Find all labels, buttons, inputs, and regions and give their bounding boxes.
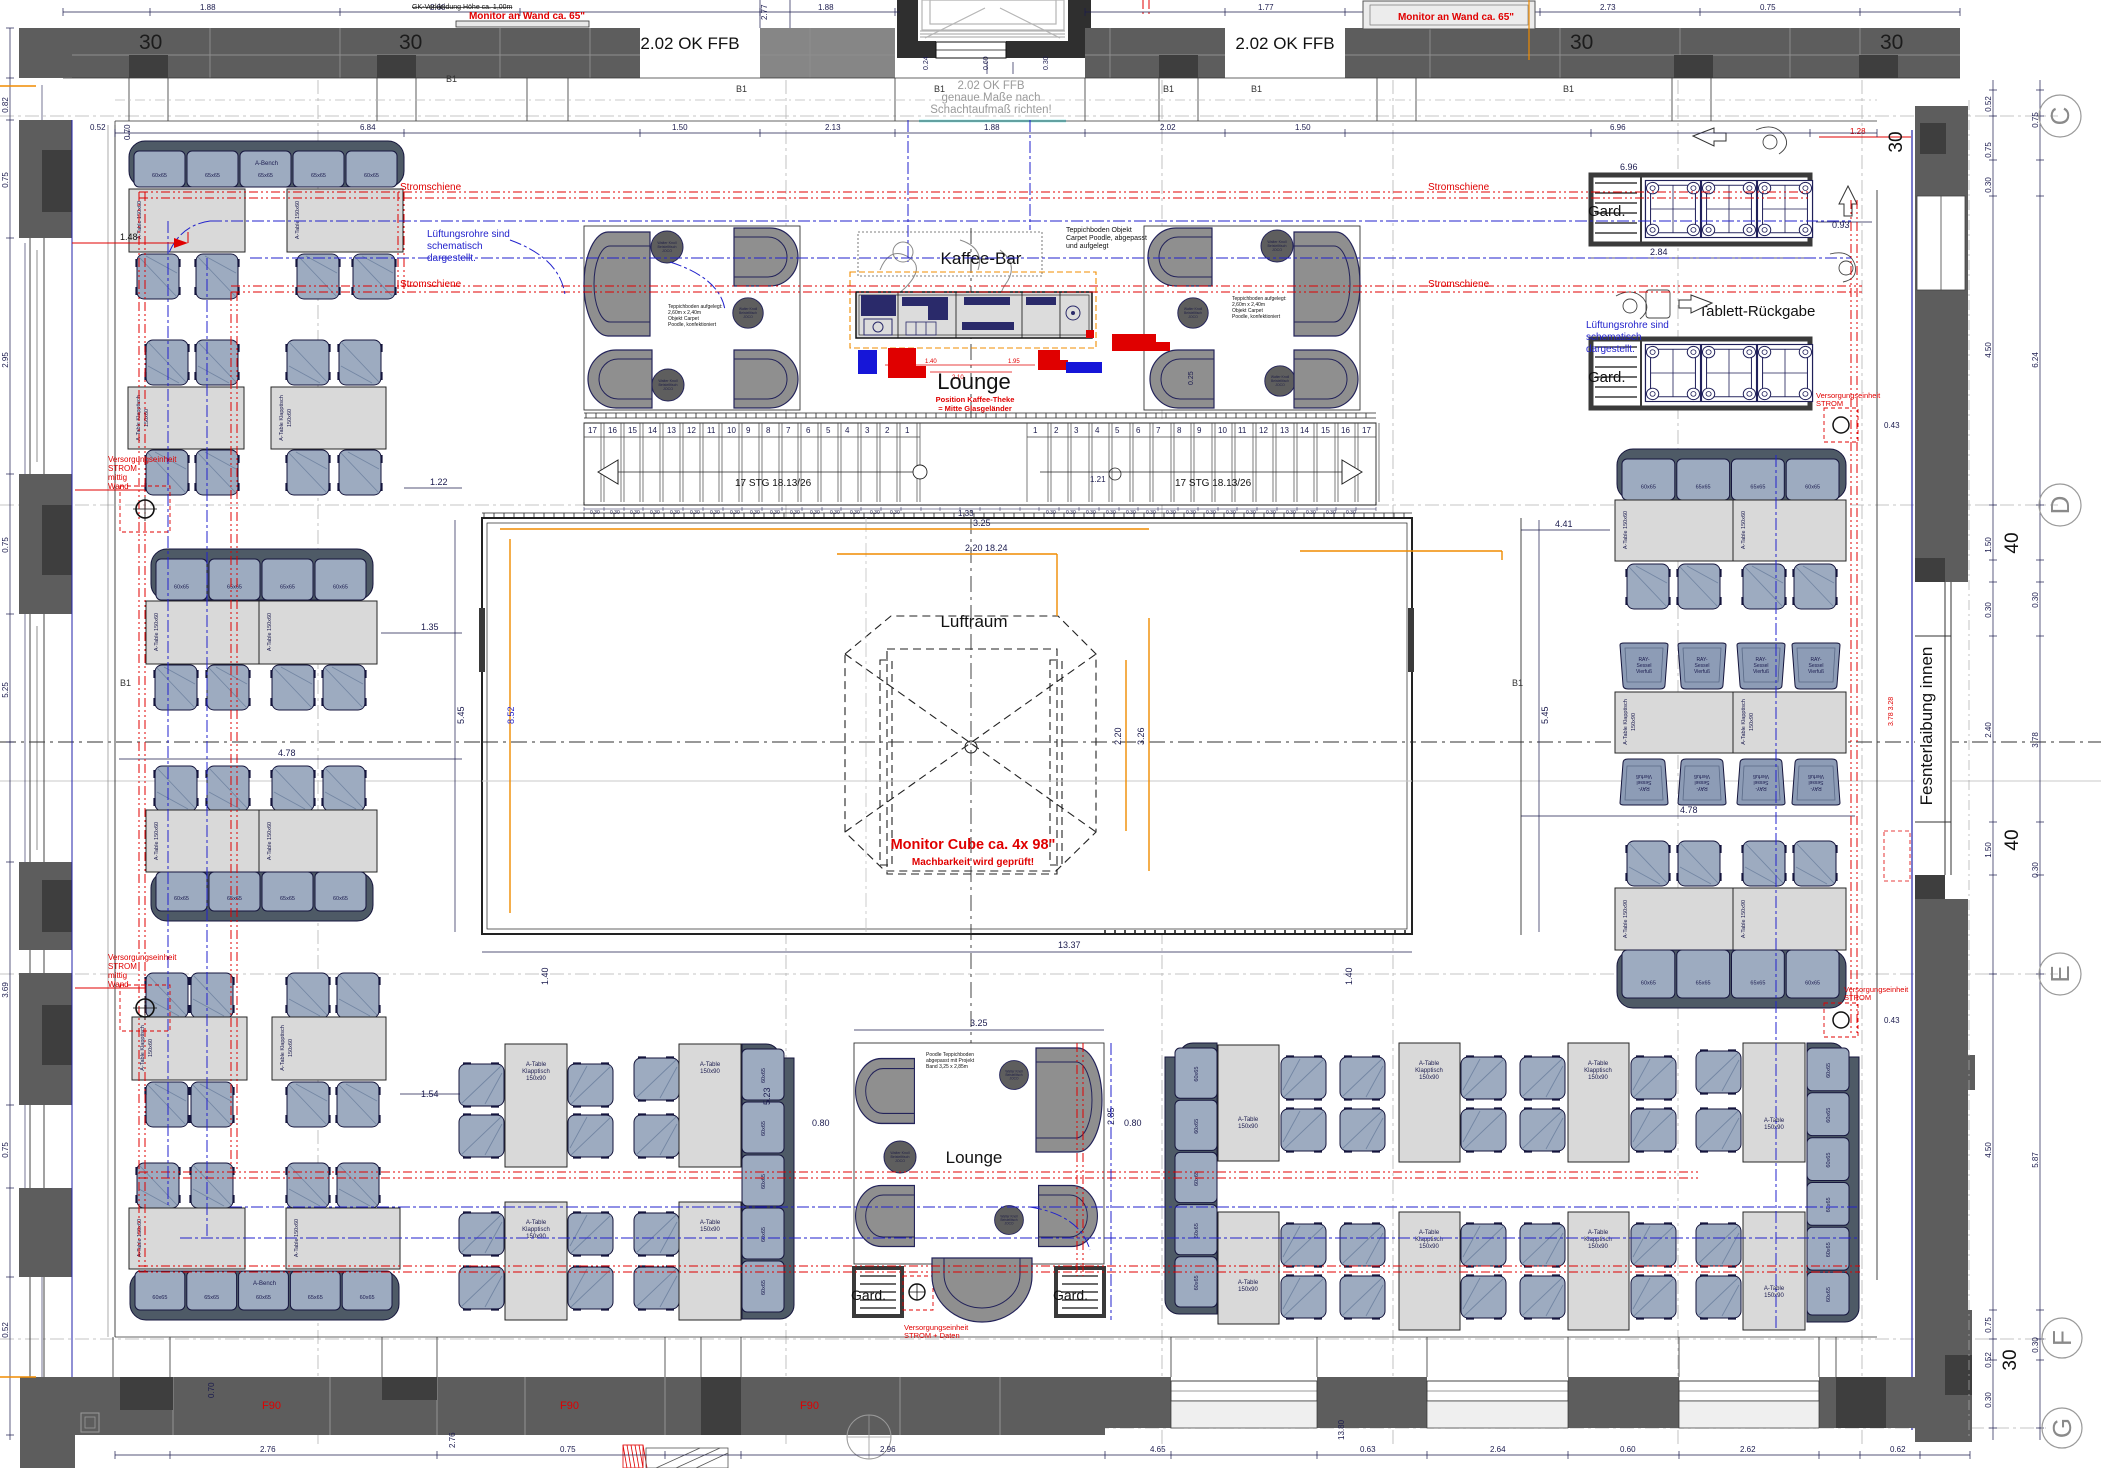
svg-text:0.75: 0.75 (1760, 3, 1776, 12)
svg-text:60x65: 60x65 (1826, 1197, 1832, 1212)
svg-text:0.30: 0.30 (1286, 510, 1296, 516)
svg-text:150x90: 150x90 (1238, 1124, 1258, 1130)
svg-text:15: 15 (1321, 426, 1330, 435)
svg-text:F90: F90 (560, 1400, 579, 1412)
svg-text:150x60: 150x60 (288, 1039, 294, 1057)
svg-text:3.69: 3.69 (1, 982, 10, 998)
svg-text:8.52: 8.52 (506, 706, 516, 724)
svg-text:Monitor Cube ca. 4x 98": Monitor Cube ca. 4x 98" (891, 837, 1056, 853)
svg-text:0.52: 0.52 (1, 1322, 10, 1338)
svg-text:65x65: 65x65 (1750, 485, 1765, 491)
svg-text:30: 30 (1886, 131, 1907, 152)
svg-text:0.30: 0.30 (1984, 177, 1993, 193)
svg-text:4.50: 4.50 (1984, 1142, 1993, 1158)
svg-text:150x90: 150x90 (1588, 1244, 1608, 1250)
svg-text:30: 30 (1880, 31, 1903, 54)
svg-text:60x65: 60x65 (1194, 1067, 1200, 1082)
svg-text:4.78: 4.78 (278, 748, 296, 758)
svg-text:60x65: 60x65 (152, 173, 167, 179)
svg-text:30: 30 (2000, 1349, 2021, 1370)
svg-text:2.02 OK FFB: 2.02 OK FFB (1235, 34, 1334, 53)
svg-text:Fesnterlaibung innen: Fesnterlaibung innen (1917, 647, 1936, 806)
svg-text:150x90: 150x90 (1764, 1293, 1784, 1299)
svg-text:1.50: 1.50 (672, 123, 688, 132)
svg-text:Poodle, konfektioniert: Poodle, konfektioniert (668, 322, 717, 328)
svg-text:A-Table: A-Table (700, 1220, 721, 1226)
svg-text:1.88: 1.88 (200, 3, 216, 12)
svg-text:14: 14 (1300, 426, 1309, 435)
svg-text:13: 13 (667, 426, 676, 435)
svg-text:2.96: 2.96 (880, 1445, 896, 1454)
svg-text:60x65: 60x65 (1826, 1108, 1832, 1123)
svg-text:1.48: 1.48 (120, 232, 138, 242)
svg-text:9: 9 (1197, 426, 1202, 435)
svg-text:0.30: 0.30 (1226, 510, 1236, 516)
svg-text:A-Table 150x90: A-Table 150x90 (1741, 900, 1747, 938)
svg-text:0.30: 0.30 (2031, 1337, 2040, 1353)
svg-text:2.73: 2.73 (1600, 3, 1616, 12)
svg-text:5: 5 (826, 426, 831, 435)
svg-text:0.30: 0.30 (1146, 510, 1156, 516)
svg-text:60x65: 60x65 (174, 585, 189, 591)
svg-text:2.20 18.24: 2.20 18.24 (965, 543, 1008, 553)
svg-text:F90: F90 (800, 1400, 819, 1412)
svg-text:6.84: 6.84 (360, 123, 376, 132)
svg-text:60x65: 60x65 (1641, 485, 1656, 491)
svg-text:A-Table 150x60: A-Table 150x60 (295, 201, 301, 239)
svg-text:2.02 OK FFB: 2.02 OK FFB (957, 80, 1024, 92)
svg-text:0.82: 0.82 (1, 97, 10, 113)
svg-text:0.80: 0.80 (1124, 1118, 1142, 1128)
svg-text:1.77: 1.77 (1258, 3, 1274, 12)
svg-text:STROM: STROM (108, 464, 137, 473)
svg-text:0.30: 0.30 (1086, 510, 1096, 516)
svg-text:17: 17 (588, 426, 597, 435)
svg-text:schematisch: schematisch (427, 241, 483, 252)
svg-text:60x65: 60x65 (761, 1068, 767, 1083)
svg-text:1: 1 (1033, 426, 1038, 435)
svg-text:dargestellt.: dargestellt. (1586, 344, 1635, 355)
svg-text:1.50: 1.50 (1984, 842, 1993, 858)
svg-text:Stromschiene: Stromschiene (1428, 182, 1490, 193)
svg-text:A-Table 150x60: A-Table 150x60 (137, 201, 143, 239)
svg-text:1.95: 1.95 (1008, 359, 1020, 365)
svg-text:150x60: 150x60 (287, 409, 293, 427)
svg-text:Klapptisch: Klapptisch (1584, 1068, 1612, 1074)
svg-text:A-Table Klapptisch: A-Table Klapptisch (1623, 699, 1629, 745)
svg-text:4: 4 (845, 426, 850, 435)
svg-text:Carpet Poodle, abgepasst: Carpet Poodle, abgepasst (1066, 235, 1147, 242)
svg-text:Band 3,25 x 2,85m: Band 3,25 x 2,85m (926, 1064, 968, 1070)
svg-text:1.21: 1.21 (1090, 475, 1106, 484)
svg-text:60x65: 60x65 (364, 173, 379, 179)
svg-text:65x65: 65x65 (227, 585, 242, 591)
svg-text:0.30: 0.30 (1166, 510, 1176, 516)
svg-text:12: 12 (687, 426, 696, 435)
svg-text:60x65: 60x65 (1826, 1287, 1832, 1302)
svg-text:Monitor an Wand ca. 65": Monitor an Wand ca. 65" (1398, 12, 1514, 23)
svg-text:1.28: 1.28 (1850, 127, 1866, 136)
svg-text:A-Table 150x60: A-Table 150x60 (1623, 511, 1629, 549)
svg-text:A-Table 150x60: A-Table 150x60 (154, 613, 160, 651)
svg-text:0.30: 0.30 (1984, 1392, 1993, 1408)
svg-text:65x65: 65x65 (205, 173, 220, 179)
svg-text:60x65: 60x65 (1826, 1063, 1832, 1078)
svg-text:B1: B1 (1251, 84, 1262, 94)
svg-text:65x65: 65x65 (311, 173, 326, 179)
svg-text:150x90: 150x90 (1631, 713, 1637, 731)
svg-text:Stromschiene: Stromschiene (400, 182, 462, 193)
svg-text:0.24: 0.24 (923, 56, 930, 70)
svg-text:2.40: 2.40 (1984, 722, 1993, 738)
svg-text:0.30: 0.30 (810, 510, 820, 516)
svg-text:2.64: 2.64 (1490, 1445, 1506, 1454)
svg-text:schematisch: schematisch (1586, 332, 1642, 343)
svg-text:Monitor an Wand ca. 65": Monitor an Wand ca. 65" (469, 11, 585, 22)
svg-text:0.30: 0.30 (830, 510, 840, 516)
svg-text:9: 9 (746, 426, 751, 435)
svg-text:150x90: 150x90 (1419, 1244, 1439, 1250)
svg-text:0.80: 0.80 (812, 1118, 830, 1128)
svg-text:40: 40 (2002, 532, 2023, 553)
svg-text:14: 14 (648, 426, 657, 435)
svg-text:Versorgungseinheit: Versorgungseinheit (108, 953, 177, 962)
svg-text:30: 30 (1570, 31, 1593, 54)
svg-text:Gard.: Gard. (1053, 1287, 1088, 1303)
svg-text:Stromschiene: Stromschiene (400, 279, 462, 290)
svg-text:Tablett-Rückgabe: Tablett-Rückgabe (1699, 303, 1816, 320)
svg-text:60x65: 60x65 (152, 1295, 167, 1301)
svg-text:STROM: STROM (1816, 399, 1843, 408)
svg-text:0.70: 0.70 (207, 1382, 216, 1398)
svg-text:B1: B1 (1563, 84, 1574, 94)
svg-text:Versorgungseinheit: Versorgungseinheit (108, 455, 177, 464)
svg-text:E: E (2045, 965, 2075, 982)
svg-text:0.30: 0.30 (670, 510, 680, 516)
svg-text:3.25: 3.25 (970, 1018, 988, 1028)
svg-text:A-Bench: A-Bench (253, 1281, 276, 1287)
svg-text:A-Table: A-Table (1764, 1118, 1785, 1124)
svg-text:5.23: 5.23 (762, 1087, 772, 1105)
svg-text:0.30: 0.30 (1066, 510, 1076, 516)
svg-text:STROM: STROM (1844, 993, 1871, 1002)
svg-text:6: 6 (1136, 426, 1141, 435)
svg-text:0.30: 0.30 (1186, 510, 1196, 516)
svg-text:6: 6 (806, 426, 811, 435)
svg-text:GK-Verkleidung Höhe ca. 1,00m: GK-Verkleidung Höhe ca. 1,00m (412, 4, 513, 11)
svg-text:40: 40 (2002, 829, 2023, 850)
svg-text:0.30: 0.30 (730, 510, 740, 516)
svg-text:60x65: 60x65 (1194, 1275, 1200, 1290)
svg-text:60x65: 60x65 (256, 1295, 271, 1301)
svg-text:Schachtaufmaß richten!: Schachtaufmaß richten! (930, 104, 1051, 116)
svg-text:3: 3 (1074, 426, 1079, 435)
svg-text:1.88: 1.88 (984, 123, 1000, 132)
svg-text:STROM + Daten: STROM + Daten (904, 1331, 960, 1340)
svg-text:60x65: 60x65 (333, 896, 348, 902)
svg-text:60x65: 60x65 (761, 1227, 767, 1242)
svg-text:= Mitte Glasgeländer: = Mitte Glasgeländer (938, 404, 1012, 413)
svg-text:Stromschiene: Stromschiene (1428, 279, 1490, 290)
svg-text:A-Table: A-Table (1588, 1061, 1609, 1067)
svg-text:60x65: 60x65 (360, 1295, 375, 1301)
svg-text:60x65: 60x65 (1641, 981, 1656, 987)
svg-text:30: 30 (399, 31, 422, 54)
svg-text:0.60: 0.60 (1620, 1445, 1636, 1454)
svg-text:Poodle, konfektioniert: Poodle, konfektioniert (1232, 314, 1281, 320)
svg-text:2.02: 2.02 (1160, 123, 1176, 132)
svg-text:15: 15 (628, 426, 637, 435)
svg-text:Lüftungsrohre sind: Lüftungsrohre sind (1586, 320, 1669, 331)
svg-text:150x90: 150x90 (1588, 1075, 1608, 1081)
svg-text:C: C (2045, 107, 2075, 126)
svg-text:60x65: 60x65 (1805, 485, 1820, 491)
svg-text:0.52: 0.52 (1984, 96, 1993, 112)
svg-text:5.25: 5.25 (1, 682, 10, 698)
svg-text:0.30: 0.30 (870, 510, 880, 516)
svg-text:60x65: 60x65 (174, 896, 189, 902)
svg-text:Luftraum: Luftraum (940, 612, 1007, 631)
svg-text:dargestellt.: dargestellt. (427, 253, 476, 264)
svg-text:1.40: 1.40 (925, 359, 937, 365)
svg-text:A-Table: A-Table (1419, 1061, 1440, 1067)
svg-text:B1: B1 (736, 84, 747, 94)
svg-text:4.78: 4.78 (1680, 805, 1698, 815)
svg-text:0.30: 0.30 (1106, 510, 1116, 516)
svg-text:5.87: 5.87 (2031, 1152, 2040, 1168)
svg-text:0.30: 0.30 (1346, 510, 1356, 516)
svg-text:0.30: 0.30 (630, 510, 640, 516)
svg-text:Lounge: Lounge (937, 369, 1010, 394)
svg-text:30: 30 (139, 31, 162, 54)
svg-text:65x65: 65x65 (204, 1295, 219, 1301)
svg-text:0.62: 0.62 (1890, 1445, 1906, 1454)
svg-text:A-Table 150x60: A-Table 150x60 (1741, 511, 1747, 549)
svg-text:65x65: 65x65 (280, 585, 295, 591)
svg-text:B1: B1 (446, 74, 457, 84)
svg-text:60x65: 60x65 (761, 1280, 767, 1295)
svg-text:150x90: 150x90 (526, 1234, 546, 1240)
svg-text:0.30: 0.30 (1984, 602, 1993, 618)
svg-text:0.52: 0.52 (1984, 1352, 1993, 1368)
svg-text:0.75: 0.75 (1, 537, 10, 553)
svg-text:A-Table: A-Table (526, 1062, 547, 1068)
svg-text:6.96: 6.96 (1610, 123, 1626, 132)
svg-text:65x65: 65x65 (227, 896, 242, 902)
svg-text:0.30: 0.30 (2031, 862, 2040, 878)
svg-text:A-Bench: A-Bench (255, 161, 278, 167)
svg-text:11: 11 (1238, 426, 1247, 435)
svg-text:Machbarkeit wird geprüft!: Machbarkeit wird geprüft! (912, 857, 1034, 868)
svg-text:0.25: 0.25 (1188, 371, 1195, 385)
svg-text:0.30: 0.30 (1306, 510, 1316, 516)
svg-text:0.30: 0.30 (1326, 510, 1336, 516)
svg-text:5.45: 5.45 (1540, 706, 1550, 724)
svg-text:6.96: 6.96 (1620, 162, 1638, 172)
svg-text:2.20: 2.20 (1113, 727, 1123, 745)
svg-text:0.30: 0.30 (850, 510, 860, 516)
svg-text:B1: B1 (1163, 84, 1174, 94)
svg-text:0.30: 0.30 (1206, 510, 1216, 516)
svg-text:mittig: mittig (108, 473, 127, 482)
svg-text:13.80: 13.80 (1337, 1419, 1346, 1440)
svg-text:60x65: 60x65 (1194, 1119, 1200, 1134)
svg-text:A-Table 150x60: A-Table 150x60 (154, 822, 160, 860)
svg-text:16: 16 (608, 426, 617, 435)
svg-text:60x65: 60x65 (333, 585, 348, 591)
svg-text:Gard.: Gard. (1588, 203, 1626, 220)
svg-text:0.60: 0.60 (983, 56, 990, 70)
svg-text:150x90: 150x90 (700, 1227, 720, 1233)
svg-text:65x65: 65x65 (1696, 981, 1711, 987)
svg-text:150x90: 150x90 (526, 1076, 546, 1082)
svg-text:A-Table Klapptisch: A-Table Klapptisch (280, 1025, 286, 1071)
svg-text:A-Table: A-Table (1764, 1286, 1785, 1292)
svg-text:0.75: 0.75 (1984, 1317, 1993, 1333)
svg-text:10: 10 (1218, 426, 1227, 435)
svg-text:0.30: 0.30 (610, 510, 620, 516)
svg-text:5.45: 5.45 (456, 706, 466, 724)
svg-text:3.25: 3.25 (973, 518, 991, 528)
svg-text:0.30: 0.30 (790, 510, 800, 516)
svg-text:3.26: 3.26 (1136, 727, 1146, 745)
svg-text:0.30: 0.30 (650, 510, 660, 516)
svg-text:A-Table: A-Table (1238, 1280, 1259, 1286)
svg-text:A-Table: A-Table (700, 1062, 721, 1068)
svg-text:0.30: 0.30 (1266, 510, 1276, 516)
svg-text:0.30: 0.30 (770, 510, 780, 516)
svg-text:A-Table: A-Table (1588, 1230, 1609, 1236)
svg-text:1.40: 1.40 (540, 967, 550, 985)
svg-text:3.78 3.28: 3.78 3.28 (1888, 697, 1895, 726)
svg-text:1.33: 1.33 (958, 509, 974, 518)
svg-text:0.43: 0.43 (1884, 421, 1900, 430)
svg-text:8: 8 (766, 426, 771, 435)
svg-text:150x60: 150x60 (148, 1039, 154, 1057)
svg-text:mittig: mittig (108, 971, 127, 980)
svg-text:A-Table 150x60: A-Table 150x60 (267, 822, 273, 860)
svg-text:0.30: 0.30 (1046, 510, 1056, 516)
svg-text:1.40: 1.40 (1344, 967, 1354, 985)
svg-text:0.63: 0.63 (1360, 1445, 1376, 1454)
svg-text:Gard.: Gard. (851, 1287, 886, 1303)
svg-text:0.70: 0.70 (123, 124, 132, 140)
svg-text:150x90: 150x90 (1749, 713, 1755, 731)
svg-text:B1: B1 (1512, 678, 1523, 688)
svg-text:F: F (2047, 1330, 2077, 1346)
svg-text:2.95: 2.95 (1, 352, 10, 368)
svg-text:2: 2 (1054, 426, 1059, 435)
svg-text:60x65: 60x65 (1805, 981, 1820, 987)
svg-text:2.62: 2.62 (1740, 1445, 1756, 1454)
svg-text:0.30: 0.30 (710, 510, 720, 516)
svg-text:1: 1 (905, 426, 910, 435)
svg-text:D: D (2045, 496, 2075, 515)
svg-text:17: 17 (1362, 426, 1371, 435)
svg-text:0.30: 0.30 (890, 510, 900, 516)
svg-text:65x65: 65x65 (1696, 485, 1711, 491)
svg-text:4.50: 4.50 (1984, 342, 1993, 358)
svg-text:60x65: 60x65 (1826, 1242, 1832, 1257)
svg-text:A-Table: A-Table (1419, 1230, 1440, 1236)
svg-text:150x90: 150x90 (1419, 1075, 1439, 1081)
svg-text:0.75: 0.75 (1, 172, 10, 188)
svg-text:genaue Maße nach: genaue Maße nach (941, 92, 1040, 104)
svg-text:60x65: 60x65 (761, 1174, 767, 1189)
svg-text:2.13: 2.13 (825, 123, 841, 132)
svg-text:0.43: 0.43 (1884, 1016, 1900, 1025)
svg-text:0.30: 0.30 (1126, 510, 1136, 516)
svg-text:0.30: 0.30 (2031, 592, 2040, 608)
svg-text:F90: F90 (262, 1400, 281, 1412)
svg-text:0.75: 0.75 (1984, 142, 1993, 158)
svg-text:0.30: 0.30 (690, 510, 700, 516)
svg-text:7: 7 (786, 426, 791, 435)
svg-text:150x90: 150x90 (1764, 1125, 1784, 1131)
svg-text:150x90: 150x90 (700, 1069, 720, 1075)
svg-text:A-Table 150x60: A-Table 150x60 (267, 613, 273, 651)
svg-text:A-Table: A-Table (1238, 1117, 1259, 1123)
svg-text:5: 5 (1115, 426, 1120, 435)
svg-text:Gard.: Gard. (1588, 369, 1626, 386)
svg-text:STROM: STROM (108, 962, 137, 971)
svg-text:60x65: 60x65 (1826, 1153, 1832, 1168)
svg-text:und aufgelegt: und aufgelegt (1066, 243, 1108, 250)
svg-text:13: 13 (1280, 426, 1289, 435)
svg-text:Lounge: Lounge (946, 1148, 1003, 1167)
svg-text:4.65: 4.65 (1150, 1445, 1166, 1454)
svg-text:60x65: 60x65 (1194, 1223, 1200, 1238)
svg-text:2.76: 2.76 (260, 1445, 276, 1454)
svg-text:Teppichboden Objekt: Teppichboden Objekt (1066, 227, 1132, 234)
svg-text:3.78: 3.78 (2031, 732, 2040, 748)
svg-text:17 STG 18.13/26: 17 STG 18.13/26 (1175, 478, 1252, 489)
svg-text:B1: B1 (120, 678, 131, 688)
svg-text:B1: B1 (934, 84, 945, 94)
svg-text:4: 4 (1095, 426, 1100, 435)
svg-text:65x65: 65x65 (280, 896, 295, 902)
svg-text:65x65: 65x65 (308, 1295, 323, 1301)
svg-text:10: 10 (727, 426, 736, 435)
svg-text:0.30: 0.30 (1043, 56, 1050, 70)
svg-text:13.37: 13.37 (1058, 940, 1081, 950)
svg-text:1.22: 1.22 (430, 477, 448, 487)
svg-text:2.84: 2.84 (1650, 247, 1668, 257)
svg-text:150x90: 150x90 (1238, 1287, 1258, 1293)
svg-text:1.88: 1.88 (818, 3, 834, 12)
svg-text:0.75: 0.75 (1, 1142, 10, 1158)
svg-text:A-Table: A-Table (526, 1220, 547, 1226)
svg-text:A-Table Klapptisch: A-Table Klapptisch (279, 395, 285, 441)
svg-text:Klapptisch: Klapptisch (1415, 1068, 1443, 1074)
svg-text:2.77: 2.77 (760, 4, 769, 20)
svg-text:7: 7 (1156, 426, 1161, 435)
svg-text:17 STG 18.13/26: 17 STG 18.13/26 (735, 478, 812, 489)
svg-text:Position Kaffee-Theke: Position Kaffee-Theke (936, 395, 1015, 404)
svg-text:0.75: 0.75 (560, 1445, 576, 1454)
svg-text:1.50: 1.50 (1984, 537, 1993, 553)
svg-text:1.50: 1.50 (1295, 123, 1311, 132)
svg-text:0.30: 0.30 (590, 510, 600, 516)
svg-text:11: 11 (707, 426, 716, 435)
svg-text:Klapptisch: Klapptisch (522, 1069, 550, 1075)
svg-text:A-Table 150x90: A-Table 150x90 (1623, 900, 1629, 938)
svg-text:0.52: 0.52 (90, 123, 106, 132)
svg-text:65x65: 65x65 (1750, 981, 1765, 987)
svg-text:0.30: 0.30 (750, 510, 760, 516)
svg-text:2: 2 (885, 426, 890, 435)
svg-text:0.30: 0.30 (1246, 510, 1256, 516)
